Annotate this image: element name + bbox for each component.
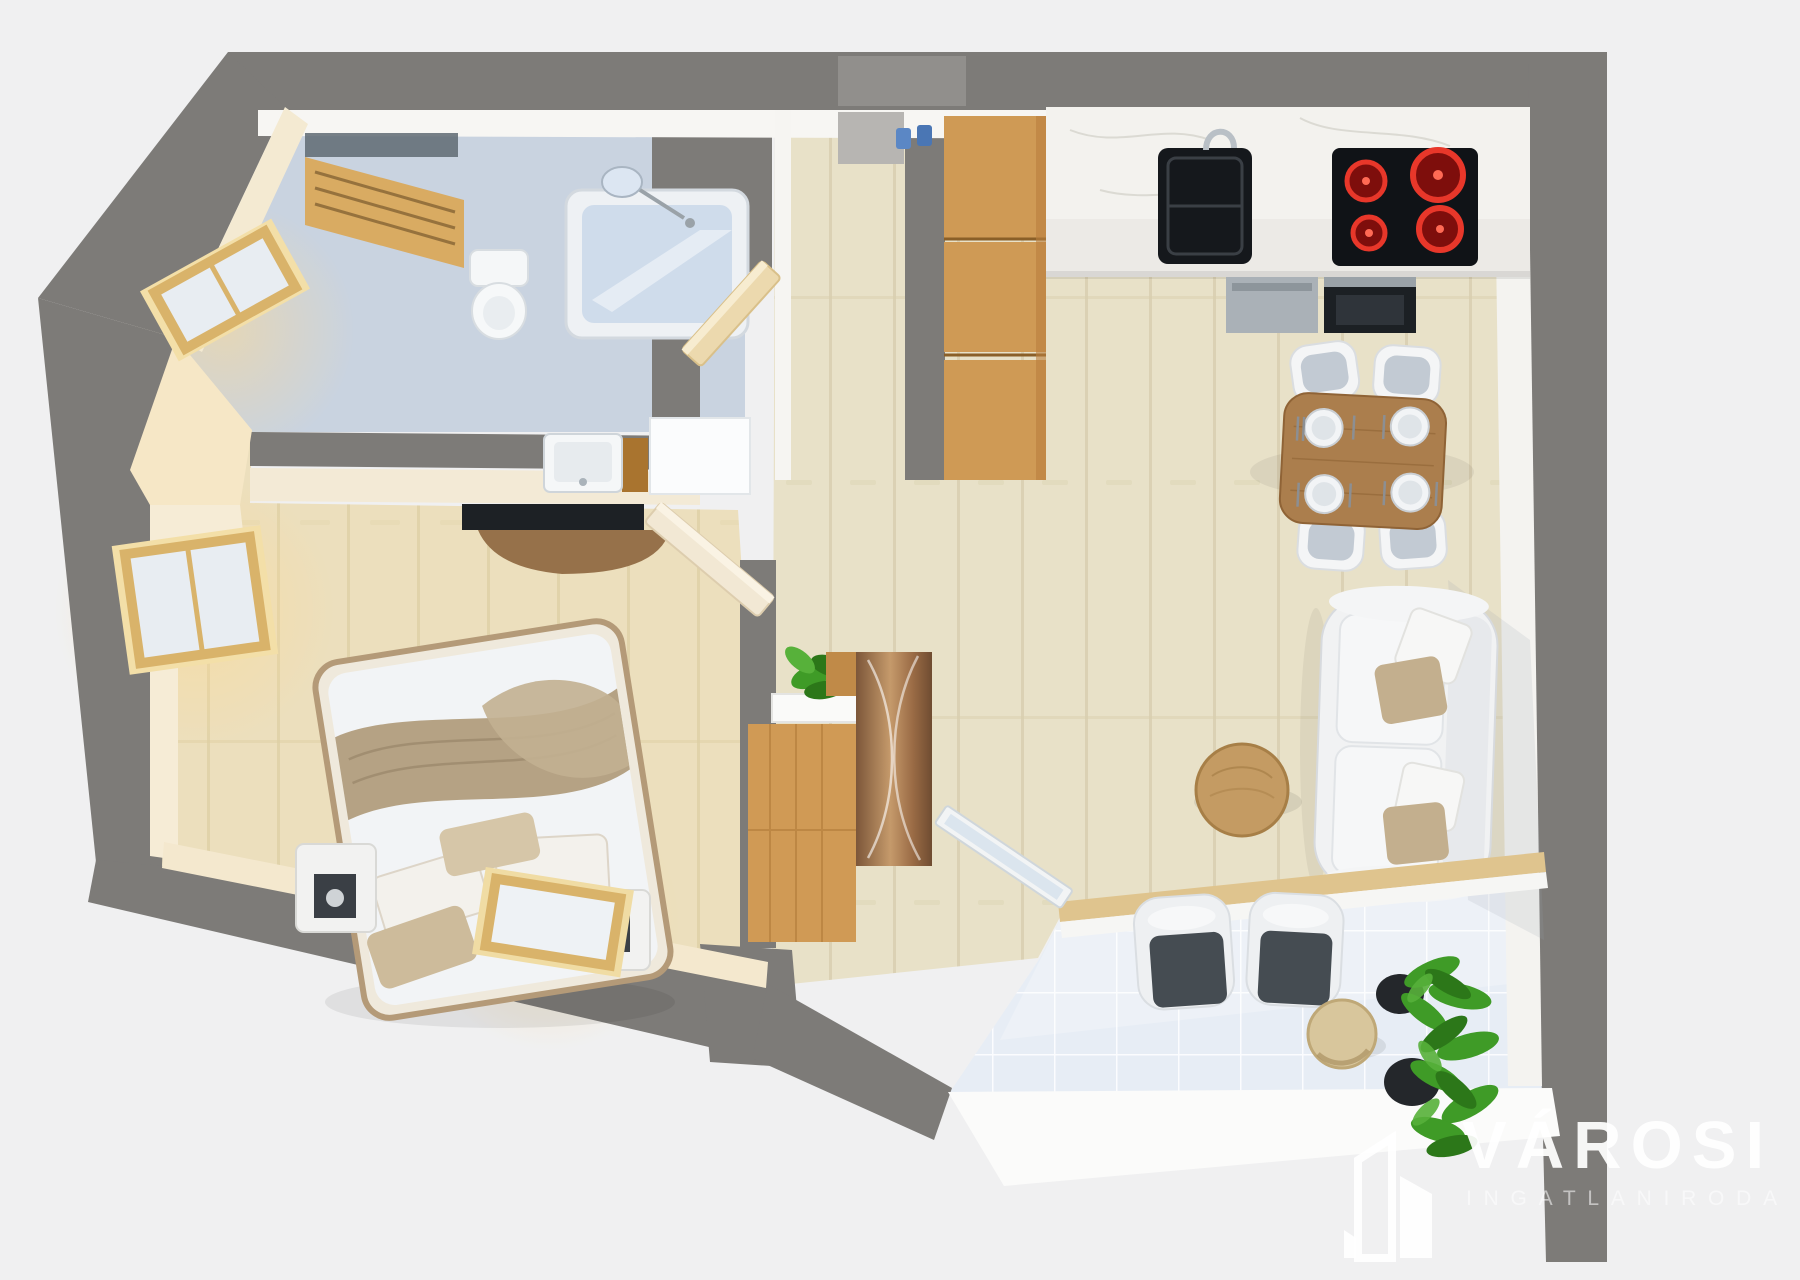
wardrobe-top-block bbox=[826, 652, 856, 696]
dishwasher bbox=[1226, 277, 1318, 333]
hall-wardrobe bbox=[748, 724, 856, 942]
bathroom-mirror-panel bbox=[650, 418, 750, 494]
floor-plan-canvas bbox=[0, 0, 1800, 1280]
bathroom-mirror-strip bbox=[305, 133, 458, 157]
sofa-pillow bbox=[1382, 801, 1450, 865]
brand-text: VÁROSI INGATLANIRODA bbox=[1462, 1112, 1789, 1211]
floor-plan-render: VÁROSI INGATLANIRODA bbox=[0, 0, 1800, 1280]
lounge-chair bbox=[1245, 892, 1345, 1009]
brand-subtitle: INGATLANIRODA bbox=[1462, 1187, 1789, 1211]
brand-watermark: VÁROSI INGATLANIRODA bbox=[1342, 1112, 1789, 1262]
cooktop bbox=[1332, 148, 1478, 266]
basin-faucet-icon bbox=[579, 478, 587, 486]
toilet bbox=[470, 250, 528, 339]
face-hall-left bbox=[775, 110, 791, 480]
bedroom-tv bbox=[462, 504, 644, 530]
shower-head-icon bbox=[602, 167, 642, 197]
oven bbox=[1324, 277, 1416, 333]
bronze-cabinet bbox=[856, 652, 932, 866]
brand-name: VÁROSI bbox=[1462, 1112, 1789, 1179]
kitchen-tall-cabinets bbox=[944, 116, 1046, 480]
sofa bbox=[1313, 583, 1500, 905]
washbasin bbox=[544, 434, 648, 492]
entry-doormat bbox=[838, 112, 904, 164]
nightstand-left bbox=[296, 844, 376, 932]
entry-door bbox=[838, 56, 966, 106]
kitchen-sink bbox=[1158, 132, 1252, 264]
window-left-lower bbox=[112, 525, 279, 675]
lounge-chair bbox=[1132, 893, 1236, 1011]
sofa-pillow bbox=[1373, 655, 1448, 726]
dining-table bbox=[1279, 392, 1448, 530]
wall-hall-kitchen bbox=[905, 107, 945, 480]
coffee-table bbox=[1196, 744, 1288, 836]
buildings-icon bbox=[1342, 1112, 1442, 1262]
